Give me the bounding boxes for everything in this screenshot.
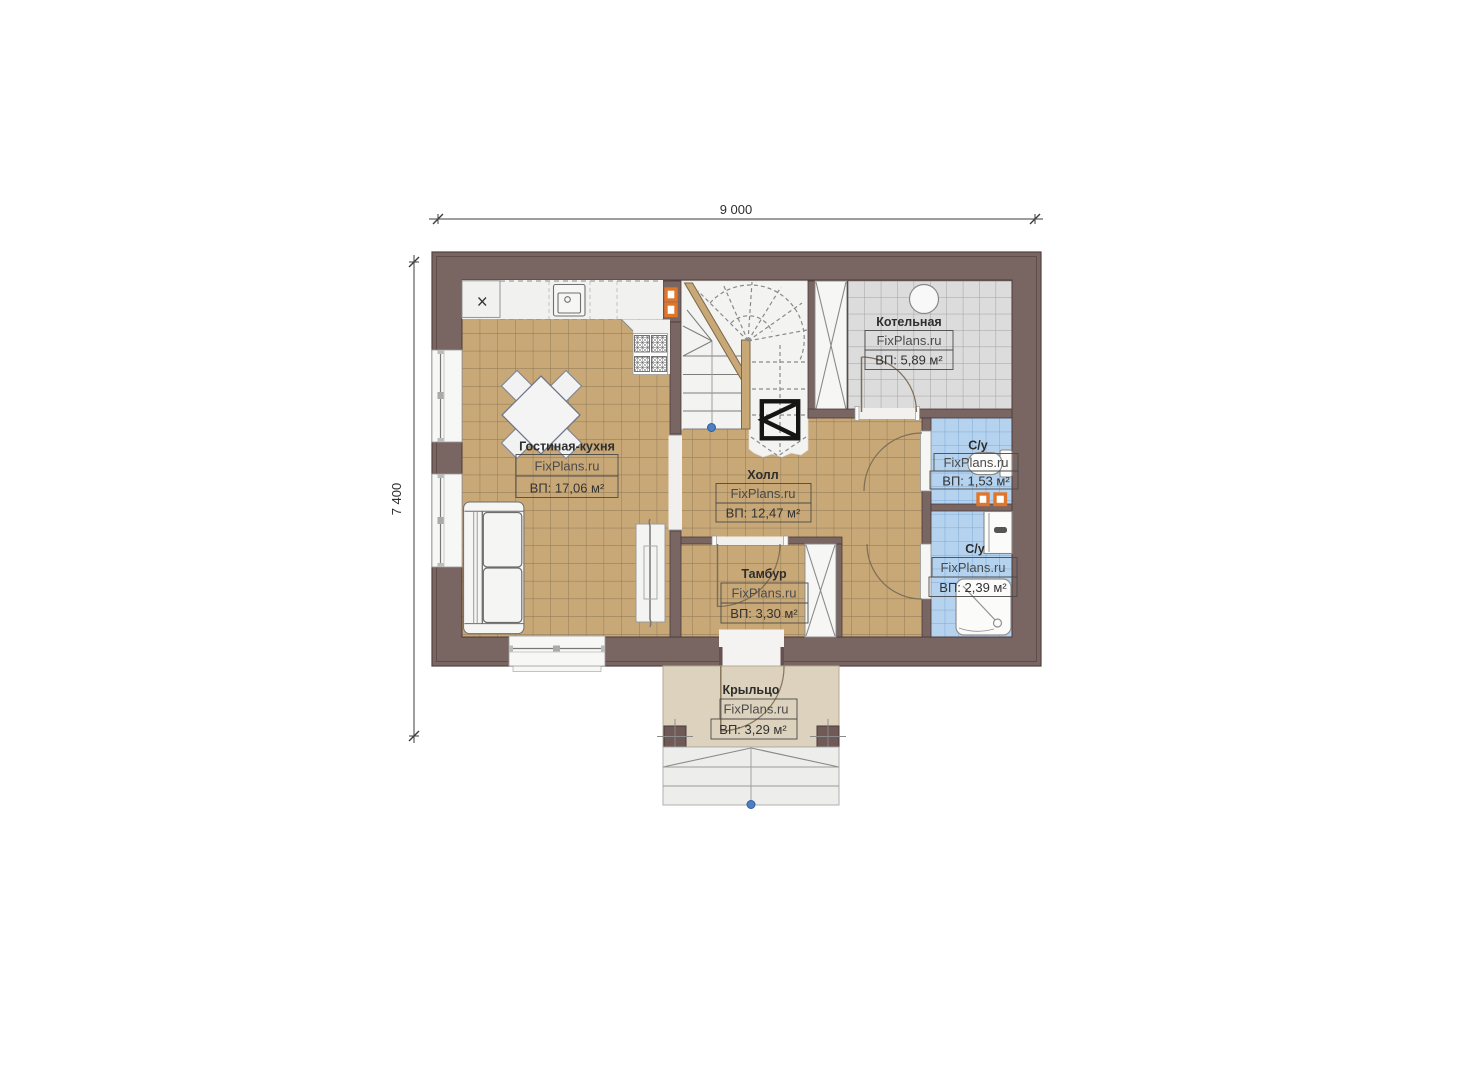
svg-text:Котельная: Котельная <box>876 315 941 329</box>
svg-text:FixPlans.ru: FixPlans.ru <box>731 586 796 601</box>
svg-text:7 400: 7 400 <box>389 483 404 516</box>
svg-text:Крыльцо: Крыльцо <box>723 683 780 697</box>
svg-text:FixPlans.ru: FixPlans.ru <box>940 560 1005 575</box>
svg-text:9 000: 9 000 <box>720 202 753 217</box>
svg-text:FixPlans.ru: FixPlans.ru <box>876 333 941 348</box>
svg-text:FixPlans.ru: FixPlans.ru <box>730 486 795 501</box>
svg-text:ВП: 5,89 м²: ВП: 5,89 м² <box>875 353 943 368</box>
svg-text:С/у: С/у <box>968 439 988 453</box>
svg-text:FixPlans.ru: FixPlans.ru <box>943 455 1008 470</box>
svg-text:Тамбур: Тамбур <box>741 567 787 581</box>
svg-text:ВП: 3,29 м²: ВП: 3,29 м² <box>719 722 787 737</box>
svg-text:FixPlans.ru: FixPlans.ru <box>723 702 788 717</box>
svg-text:Холл: Холл <box>747 468 778 482</box>
svg-text:FixPlans.ru: FixPlans.ru <box>534 459 599 474</box>
svg-text:ВП: 1,53 м²: ВП: 1,53 м² <box>942 474 1010 489</box>
svg-text:С/у: С/у <box>965 542 985 556</box>
svg-text:ВП: 3,30 м²: ВП: 3,30 м² <box>730 606 798 621</box>
svg-text:ВП: 2,39 м²: ВП: 2,39 м² <box>939 580 1007 595</box>
svg-text:Гостиная-кухня: Гостиная-кухня <box>519 440 615 454</box>
svg-text:ВП: 17,06 м²: ВП: 17,06 м² <box>530 481 605 496</box>
svg-text:ВП: 12,47 м²: ВП: 12,47 м² <box>726 506 801 521</box>
